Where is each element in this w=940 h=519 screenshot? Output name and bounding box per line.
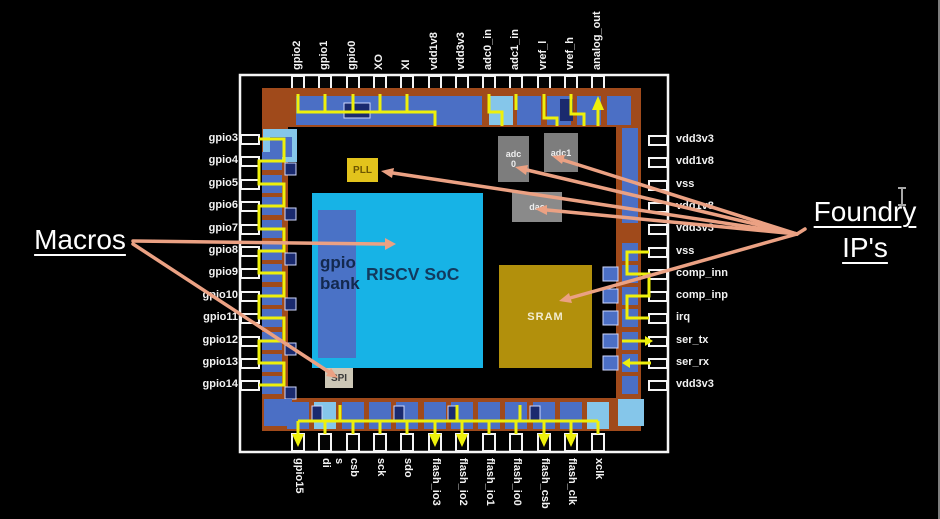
pin-label-top-adc0_in: adc0_in <box>482 29 495 70</box>
pin-label-top-vdd1v8: vdd1v8 <box>428 32 441 70</box>
pin-label-right-comp_inp-7: comp_inp <box>676 289 728 302</box>
pin-label-right-irq-8: irq <box>676 311 690 324</box>
macros-annotation: Macros <box>22 222 138 258</box>
pin-label-top-vdd3v3: vdd3v3 <box>455 32 468 70</box>
slide: gpio bank RISCV SoC SRAM adc 0 adc1 dac … <box>0 0 940 519</box>
foundry-text-line1: Foundry <box>814 196 917 227</box>
pin-label-right-vss-5: vss <box>676 245 694 258</box>
pin-label-top-adc1_in: adc1_in <box>509 29 522 70</box>
pin-label-bottom-flash_io3: flash_io3 <box>429 458 442 506</box>
pin-label-bottom-flash_csb: flash_csb <box>538 458 551 509</box>
pin-label-left-gpio9: gpio9 <box>193 266 238 279</box>
macros-text: Macros <box>34 224 126 255</box>
pin-label-right-vdd3v3-0: vdd3v3 <box>676 133 714 146</box>
pin-label-left-gpio7: gpio7 <box>193 222 238 235</box>
pin-label-bottom-sdi: s di <box>319 458 345 468</box>
pin-label-left-gpio14: gpio14 <box>193 378 238 391</box>
foundry-text-line2: IP's <box>842 232 888 263</box>
pin-label-left-gpio3: gpio3 <box>193 132 238 145</box>
pin-label-top-vref_h: vref_h <box>564 37 577 70</box>
pin-label-bottom-flash_io2: flash_io2 <box>456 458 469 506</box>
pin-label-right-vdd1v8-1: vdd1v8 <box>676 155 714 168</box>
labels: Macros Foundry IP's gpio2gpio1gpio0XOXIv… <box>0 0 940 519</box>
pin-label-left-gpio10: gpio10 <box>193 289 238 302</box>
pin-label-top-XO: XO <box>373 54 386 70</box>
pin-label-left-gpio5: gpio5 <box>193 177 238 190</box>
foundry-ips-annotation: Foundry IP's <box>796 194 934 266</box>
pin-label-bottom-xclk: xclk <box>592 458 605 479</box>
pin-label-top-gpio0: gpio0 <box>346 41 359 70</box>
pin-label-bottom-gpio15: gpio15 <box>292 458 305 493</box>
pin-label-right-vdd3v3-11: vdd3v3 <box>676 378 714 391</box>
pin-label-right-vdd3v3-4: vdd3v3 <box>676 222 714 235</box>
pin-label-top-XI: XI <box>400 60 413 70</box>
pin-label-right-vdd1v8-3: vdd1v8 <box>676 200 714 213</box>
pin-label-top-analog_out: analog_out <box>591 11 604 70</box>
pin-label-bottom-flash_clk: flash_clk <box>565 458 578 505</box>
pin-label-top-gpio1: gpio1 <box>318 41 331 70</box>
pin-label-bottom-sdo: sdo <box>401 458 414 478</box>
pin-label-right-ser_tx-9: ser_tx <box>676 334 708 347</box>
pin-label-right-vss-2: vss <box>676 178 694 191</box>
pin-label-left-gpio4: gpio4 <box>193 154 238 167</box>
pin-label-bottom-sck: sck <box>374 458 387 476</box>
pin-label-top-gpio2: gpio2 <box>291 41 304 70</box>
pin-label-right-comp_inn-6: comp_inn <box>676 267 728 280</box>
pin-label-bottom-flash_io0: flash_io0 <box>510 458 523 506</box>
pin-label-right-ser_rx-10: ser_rx <box>676 356 709 369</box>
pin-label-left-gpio12: gpio12 <box>193 334 238 347</box>
pin-label-left-gpio6: gpio6 <box>193 199 238 212</box>
pin-label-bottom-csb: csb <box>347 458 360 477</box>
pin-label-left-gpio11: gpio11 <box>193 311 238 324</box>
pin-label-top-vref_l: vref_l <box>537 41 550 70</box>
pin-label-left-gpio8: gpio8 <box>193 244 238 257</box>
pin-label-left-gpio13: gpio13 <box>193 356 238 369</box>
pin-label-bottom-flash_io1: flash_io1 <box>483 458 496 506</box>
